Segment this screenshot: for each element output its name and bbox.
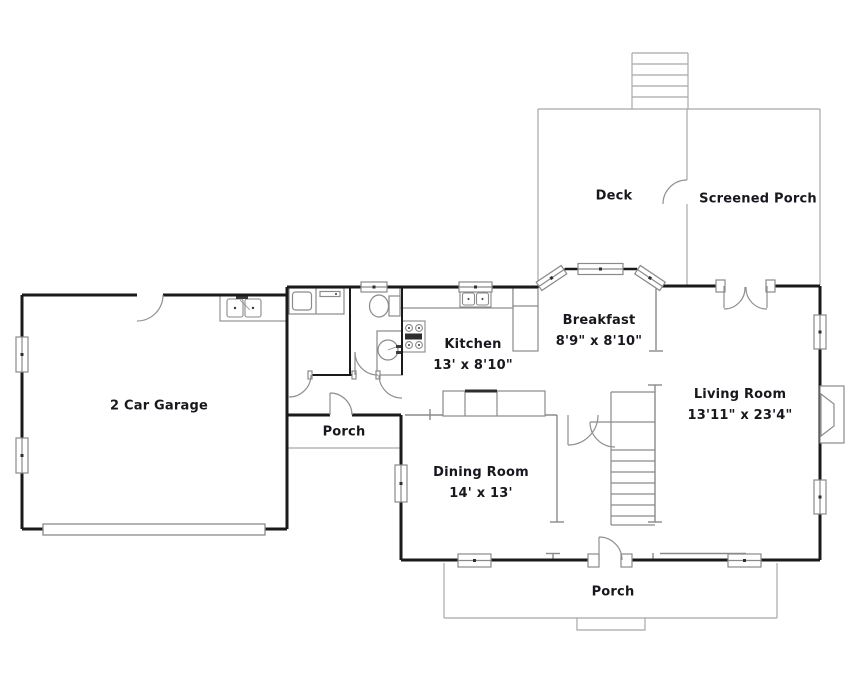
stairs [590, 392, 655, 525]
garage-door [43, 524, 265, 535]
hall-to-kitchen-door [379, 375, 402, 398]
room-dimensions: 13' x 8'10" [433, 355, 513, 376]
front-door [599, 537, 622, 560]
bay-window-left [536, 266, 567, 291]
room-label-dining-room: Dining Room 14' x 13' [433, 462, 529, 504]
room-label-front-porch: Porch [592, 582, 635, 603]
washer-dryer [289, 288, 344, 314]
fireplace [820, 386, 844, 443]
room-dimensions: 8'9" x 8'10" [556, 331, 643, 352]
room-name: Porch [592, 585, 635, 600]
vanity-sink [377, 331, 402, 375]
room-label-kitchen: Kitchen 13' x 8'10" [433, 334, 513, 376]
room-name: Dining Room [433, 465, 529, 480]
room-label-breakfast: Breakfast 8'9" x 8'10" [556, 310, 643, 352]
room-dimensions: 14' x 13' [433, 483, 529, 504]
dining-room-window-south [458, 554, 491, 567]
refrigerator [513, 288, 538, 351]
room-label-garage: 2 Car Garage [110, 396, 208, 417]
porch-steps [577, 618, 645, 630]
garage-window-lower [16, 438, 28, 473]
living-room-window-south [728, 554, 761, 567]
room-name: Deck [596, 189, 633, 204]
buffet-cabinet [443, 391, 545, 416]
french-door-right [746, 286, 767, 309]
living-room-window-lower [814, 480, 826, 514]
front-door-jamb-left [588, 554, 599, 567]
front-door-jamb-right [621, 554, 632, 567]
hall-to-side-porch-door [330, 393, 352, 415]
room-label-living-room: Living Room 13'11" x 23'4" [687, 384, 792, 426]
range-stove [402, 321, 425, 352]
powder-room-window [361, 282, 387, 292]
room-name: Porch [323, 425, 366, 440]
garage-entry-door [137, 295, 163, 321]
kitchen-window [459, 282, 492, 292]
floor-plan: 2 Car Garage Porch Kitchen 13' x 8'10" B… [0, 0, 860, 686]
deck-to-screened-porch-door [663, 180, 687, 204]
toilet [370, 295, 401, 317]
kitchen-counter [400, 288, 513, 308]
laundry-sink [220, 294, 287, 321]
room-label-side-porch: Porch [323, 422, 366, 443]
room-label-screened-porch: Screened Porch [699, 189, 817, 210]
dining-to-hall-door [568, 415, 598, 445]
dining-room-window-west [395, 465, 407, 502]
french-door-left [724, 286, 745, 309]
bay-window-center [578, 264, 623, 275]
room-label-deck: Deck [596, 186, 633, 207]
room-name: Kitchen [444, 337, 501, 352]
room-name: Screened Porch [699, 192, 817, 207]
room-name: Living Room [694, 387, 786, 402]
floor-plan-linework [0, 0, 860, 686]
living-room-window-upper [814, 315, 826, 349]
room-name: 2 Car Garage [110, 399, 208, 414]
room-dimensions: 13'11" x 23'4" [687, 405, 792, 426]
room-name: Breakfast [563, 313, 636, 328]
bay-window-right [635, 266, 666, 291]
powder-room-door [355, 352, 378, 375]
garage-window-upper [16, 337, 28, 372]
deck-steps [632, 53, 688, 109]
